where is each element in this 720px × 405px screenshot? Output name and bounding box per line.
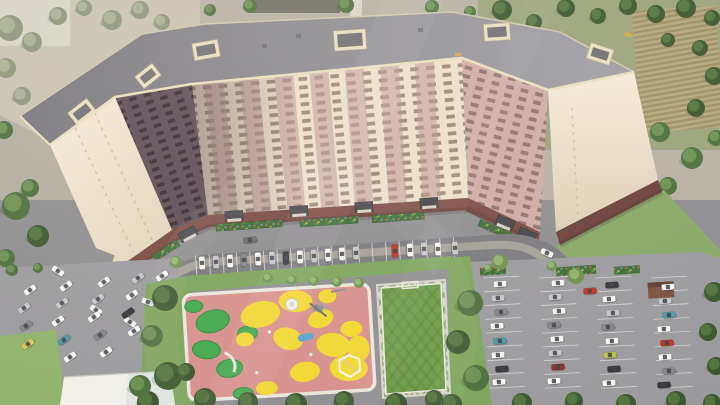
aerial-render-image (0, 0, 720, 405)
residential-complex-render (0, 0, 720, 405)
